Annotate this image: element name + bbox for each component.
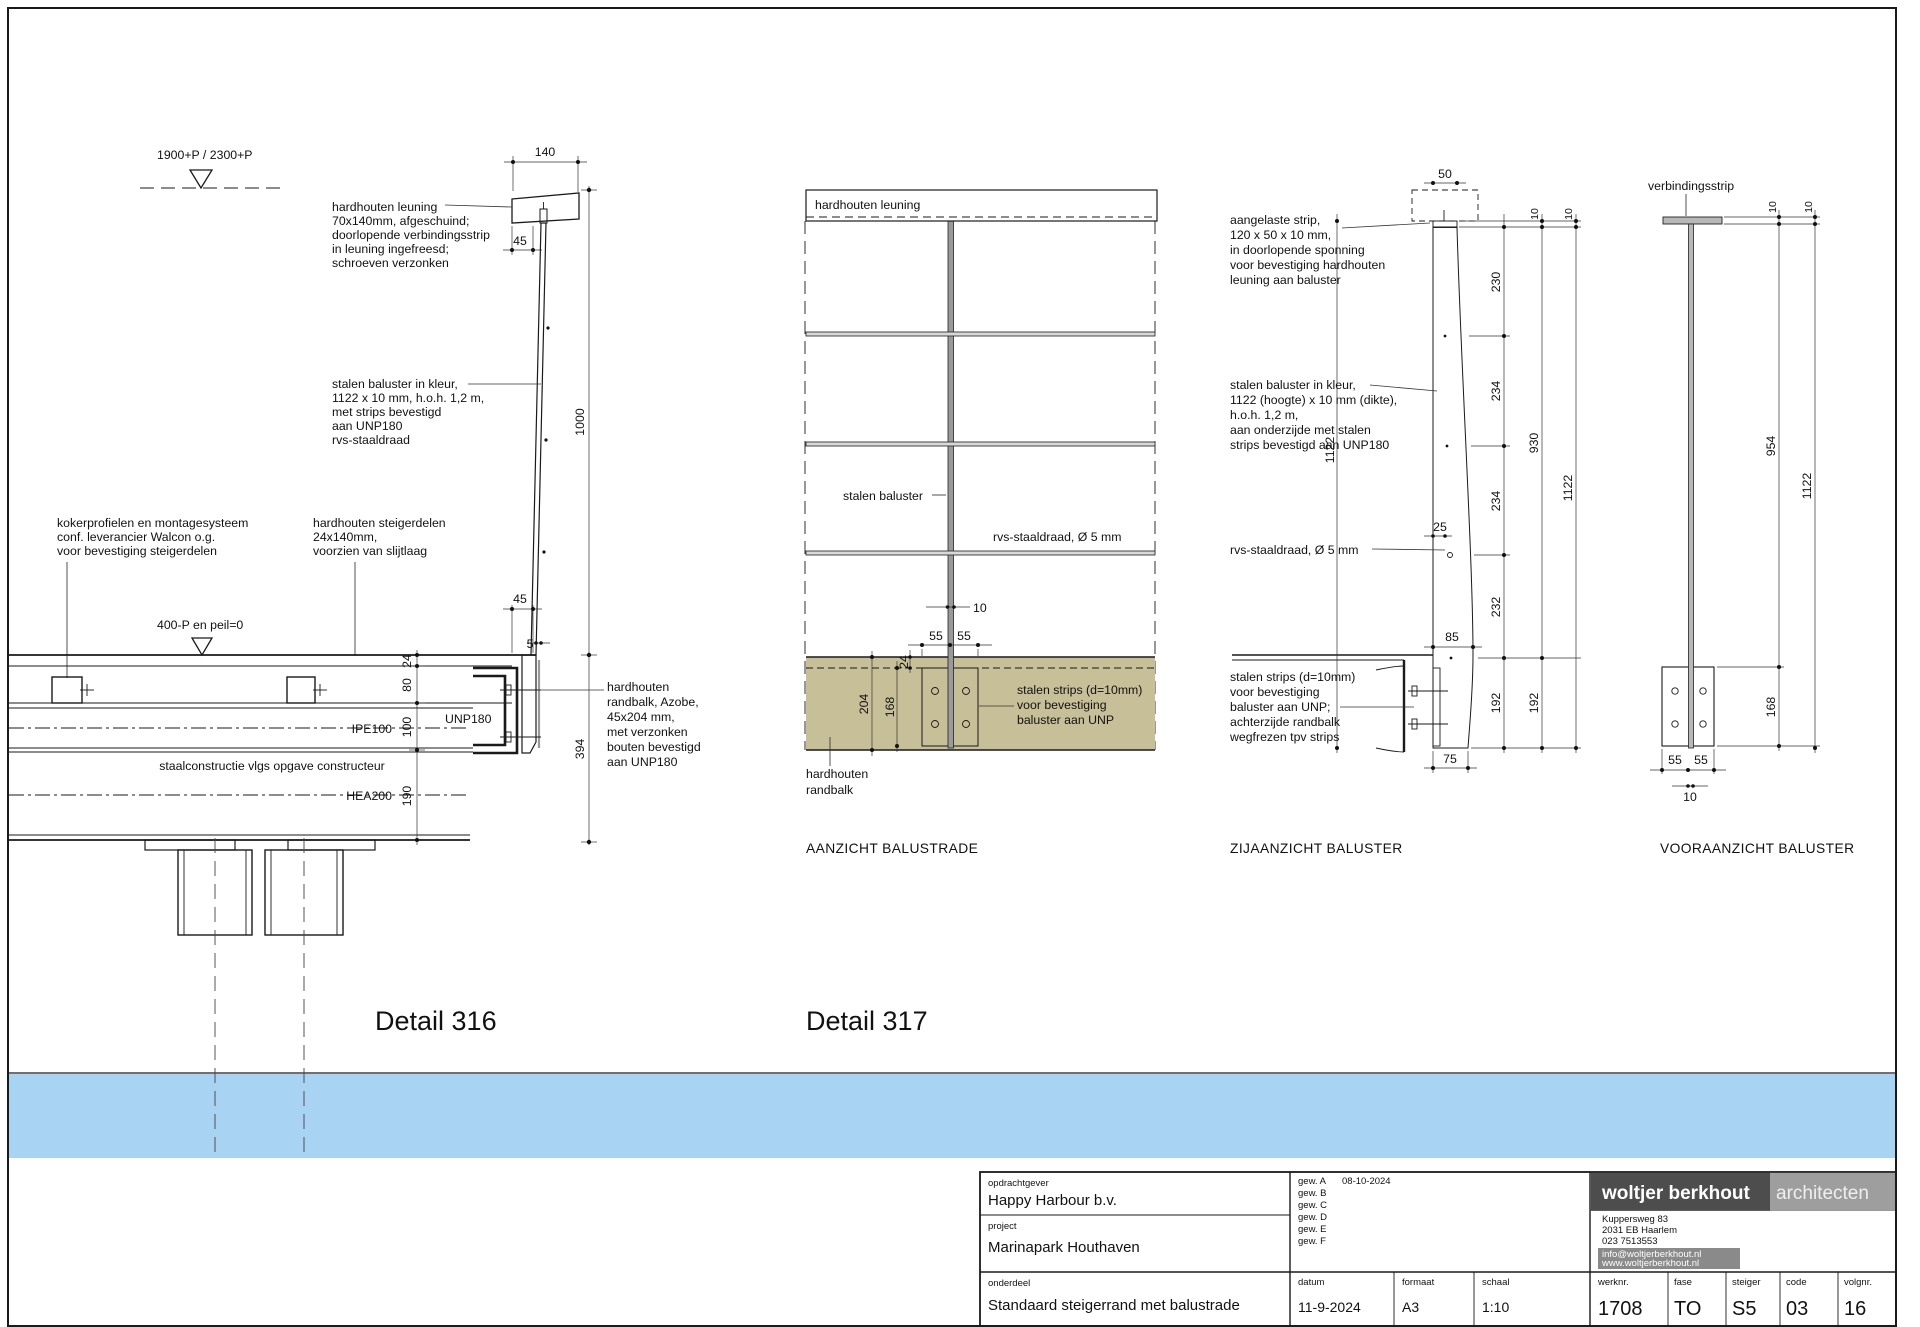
zijaanzicht-baluster: 50 25 85 75 1122 230 234 234 232 192 10 … [1229,167,1581,856]
dim-1122: 1122 [1800,473,1814,500]
scale-value: 1:10 [1482,1299,1509,1315]
svg-text:met strips bevestigd: met strips bevestigd [332,405,442,419]
steiger-label: steiger [1732,1277,1761,1288]
project-value: Marinapark Houthaven [988,1239,1140,1256]
dim-10b: 10 [1563,208,1575,220]
dim-85: 85 [1445,630,1459,644]
dim-10a: 10 [1529,208,1541,220]
vooraanzicht-caption: VOORAANZICHT BALUSTER [1660,841,1854,856]
welded-strip-label: aangelaste strip, [1230,213,1320,227]
svg-text:aan onderzijde met stalen: aan onderzijde met stalen [1230,423,1371,437]
wire-rope [806,551,1155,555]
worknr-value: 1708 [1598,1298,1643,1320]
part-label: onderdeel [988,1278,1030,1289]
handrail-hidden [1412,190,1478,221]
svg-text:in leuning ingefreesd;: in leuning ingefreesd; [332,242,449,256]
rev-c: gew. C [1298,1200,1327,1211]
dim-930: 930 [1527,433,1541,454]
dim-5: 5 [527,637,534,651]
svg-text:voor bevestiging: voor bevestiging [1230,685,1320,699]
rev-f: gew. F [1298,1236,1326,1247]
dim-45-top: 45 [513,234,527,248]
koker-profile [287,677,315,703]
unp-channel [473,668,517,753]
svg-text:h.o.h. 1,2 m,: h.o.h. 1,2 m, [1230,408,1298,422]
dim-234b: 234 [1489,491,1503,512]
baluster-side [1433,227,1473,748]
project-label: project [988,1221,1017,1232]
steiger-value: S5 [1732,1298,1756,1320]
dim-192a: 192 [1489,693,1503,714]
svg-text:aan UNP180: aan UNP180 [332,419,403,433]
svg-text:voor bevestiging: voor bevestiging [1017,698,1107,712]
baluster-front [1689,224,1694,748]
svg-text:70x140mm, afgeschuind;: 70x140mm, afgeschuind; [332,214,469,228]
firm-suffix: architecten [1776,1183,1869,1204]
unp-label: UNP180 [445,712,492,726]
water-surface [9,1074,1895,1158]
svg-text:randbalk: randbalk [806,783,854,797]
dim-75: 75 [1443,752,1457,766]
date-label: datum [1298,1277,1324,1288]
level-marker-icon [190,170,212,188]
dim-55a: 55 [929,629,943,643]
aanzicht-caption: AANZICHT BALUSTRADE [806,841,978,856]
decking-label: hardhouten steigerdelen [313,516,446,530]
detail-317-title: Detail 317 [806,1006,928,1036]
svg-text:strips bevestigd aan UNP180: strips bevestigd aan UNP180 [1230,438,1389,452]
code-value: 03 [1786,1298,1808,1320]
dim-234a: 234 [1489,381,1503,402]
svg-text:45x204 mm,: 45x204 mm, [607,710,675,724]
svg-text:120 x 50 x 10 mm,: 120 x 50 x 10 mm, [1230,228,1331,242]
verbindingsstrip-label: verbindingsstrip [1648,179,1734,193]
svg-text:randbalk, Azobe,: randbalk, Azobe, [607,695,699,709]
ipe-label: IPE100 [352,722,392,736]
format-value: A3 [1402,1299,1419,1315]
wire-rope-end [1448,553,1453,558]
dim-50: 50 [1438,167,1452,181]
baluster-label: stalen baluster in kleur, [1230,378,1356,392]
water-band [9,1073,1895,1158]
handrail-section [512,193,579,223]
svg-text:aan UNP180: aan UNP180 [607,755,678,769]
steel-note: staalconstructie vlgs opgave constructeu… [159,759,385,773]
hea-label: HEA200 [346,789,392,803]
sheetnr-value: 16 [1844,1298,1866,1320]
firm-name: woltjer berkhout [1601,1183,1750,1204]
dim-10: 10 [973,601,987,615]
rev-a: gew. A [1298,1176,1327,1187]
part-value: Standaard steigerrand met balustrade [988,1297,1240,1314]
svg-text:1122 (hoogte) x 10 mm (dikte),: 1122 (hoogte) x 10 mm (dikte), [1230,393,1397,407]
svg-text:1122 x 10 mm, h.o.h. 1,2 m,: 1122 x 10 mm, h.o.h. 1,2 m, [332,391,484,405]
dim-1122-right: 1122 [1561,475,1575,502]
vooraanzicht-baluster: verbindingsstrip 55 55 10 10 954 168 10 … [1648,179,1854,856]
strip-side [1433,668,1440,746]
connection-strip [1663,217,1722,224]
dim-954: 954 [1764,436,1778,457]
website: www.woltjerberkhout.nl [1601,1258,1699,1269]
rev-d: gew. D [1298,1212,1327,1223]
dim-25: 25 [1433,520,1447,534]
svg-text:in doorlopende sponning: in doorlopende sponning [1230,243,1365,257]
handrail-label: hardhouten leuning [332,200,437,214]
dim-10c: 10 [1683,790,1697,804]
edge-beam-label: hardhouten [806,767,868,781]
edge-beam-label: hardhouten [607,680,669,694]
dim-230: 230 [1489,272,1503,293]
svg-text:voorzien van slijtlaag: voorzien van slijtlaag [313,544,427,558]
code-label: code [1786,1277,1807,1288]
dim-80: 80 [400,678,414,692]
scale-label: schaal [1482,1277,1509,1288]
dim-55b: 55 [1694,753,1708,767]
svg-text:baluster aan UNP: baluster aan UNP [1017,713,1114,727]
dim-190: 190 [400,786,414,807]
detail-316: 1900+P / 2300+P 140 45 1000 394 hardhou [9,145,701,1160]
svg-text:voor bevestiging steigerdelen: voor bevestiging steigerdelen [57,544,217,558]
rev-a-date: 08-10-2024 [1342,1176,1391,1187]
wire-rope [806,442,1155,446]
svg-text:schroeven verzonken: schroeven verzonken [332,256,449,270]
strip-plate-front [1662,667,1714,746]
drawing-sheet: 1900+P / 2300+P 140 45 1000 394 hardhou [0,0,1920,1327]
title-block: opdrachtgever Happy Harbour b.v. project… [980,1172,1896,1326]
dim-100: 100 [400,717,414,738]
date-value: 11-9-2024 [1298,1299,1361,1315]
svg-text:achterzijde randbalk: achterzijde randbalk [1230,715,1341,729]
format-label: formaat [1402,1277,1435,1288]
level-top-label: 1900+P / 2300+P [157,148,253,162]
dim-168: 168 [1764,697,1778,718]
koker-label: kokerprofielen en montagesysteem [57,516,248,530]
svg-text:bouten bevestigd: bouten bevestigd [607,740,701,754]
dim-140: 140 [535,145,556,159]
svg-text:rvs-staaldraad: rvs-staaldraad [332,433,410,447]
handrail-band-label: hardhouten leuning [815,198,920,212]
dim-168: 168 [883,697,897,718]
phase-value: TO [1674,1298,1701,1320]
baluster-label: stalen baluster [843,489,923,503]
edge-beam-section [522,655,536,753]
architectural-detail-drawing: 1900+P / 2300+P 140 45 1000 394 hardhou [0,0,1920,1327]
svg-text:wegfrezen tpv strips: wegfrezen tpv strips [1229,730,1339,744]
client-value: Happy Harbour b.v. [988,1192,1117,1209]
svg-text:baluster aan UNP;: baluster aan UNP; [1230,700,1330,714]
client-label: opdrachtgever [988,1178,1049,1189]
detail-316-title: Detail 316 [375,1006,497,1036]
svg-text:leuning aan baluster: leuning aan baluster [1230,273,1341,287]
rev-e: gew. E [1298,1224,1327,1235]
dim-204: 204 [857,694,871,715]
rev-b: gew. B [1298,1188,1327,1199]
phase-label: fase [1674,1277,1692,1288]
baluster-label: stalen baluster in kleur, [332,377,458,391]
dim-232: 232 [1489,597,1503,618]
baluster-elevation [948,221,954,748]
address-line: Kuppersweg 83 [1602,1214,1668,1225]
dim-55b: 55 [957,629,971,643]
wire-rope-label: rvs-staaldraad, Ø 5 mm [993,530,1121,544]
dim-24: 24 [897,655,911,669]
address-line: 2031 EB Haarlem [1602,1225,1677,1236]
dim-55a: 55 [1668,753,1682,767]
level-deck-label: 400-P en peil=0 [157,618,243,632]
dim-45-bottom: 45 [513,592,527,606]
dim-10b: 10 [1803,201,1815,213]
zijaanzicht-caption: ZIJAANZICHT BALUSTER [1230,841,1403,856]
dim-1000: 1000 [573,408,587,436]
koker-profile [52,677,82,703]
svg-text:conf. leverancier Walcon o.g.: conf. leverancier Walcon o.g. [57,530,215,544]
svg-text:met verzonken: met verzonken [607,725,688,739]
level-marker-icon [192,638,212,655]
strips-label: stalen strips (d=10mm) [1017,683,1142,697]
dim-192b: 192 [1527,693,1541,714]
worknr-label: werknr. [1597,1277,1629,1288]
wire-rope-label: rvs-staaldraad, Ø 5 mm [1230,543,1358,557]
svg-text:24x140mm,: 24x140mm, [313,530,377,544]
dim-394: 394 [573,739,587,760]
svg-text:voor bevestiging hardhouten: voor bevestiging hardhouten [1230,258,1385,272]
baluster-section [531,223,546,655]
address-line: 023 7513553 [1602,1236,1657,1247]
dim-10a: 10 [1767,201,1779,213]
strips-label: stalen strips (d=10mm) [1230,670,1355,684]
sheetnr-label: volgnr. [1844,1277,1872,1288]
svg-text:doorlopende verbindingsstrip: doorlopende verbindingsstrip [332,228,490,242]
dim-24: 24 [400,654,414,668]
wire-rope [806,332,1155,336]
detail-317-aanzicht: hardhouten leuning stalen baluster rvs-s… [805,190,1157,1036]
